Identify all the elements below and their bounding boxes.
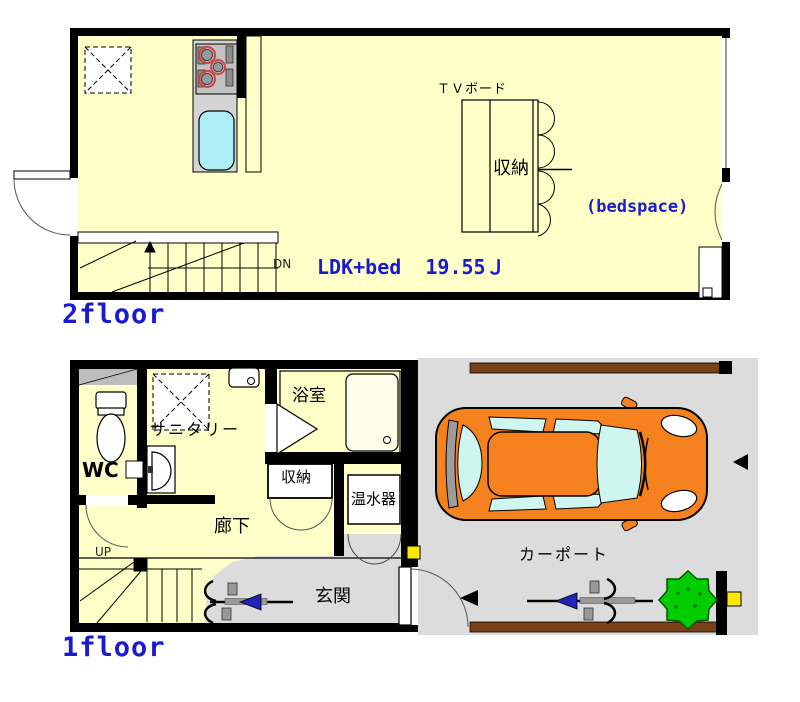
entrance-label: 玄関: [315, 588, 351, 606]
sanitary-label: サニタリー: [150, 422, 240, 438]
hallway-label: 廊下: [214, 518, 250, 536]
tv-board-label: ＴＶボード: [437, 83, 507, 96]
washbasin-icon: [147, 446, 175, 493]
car-icon: [436, 396, 707, 532]
carport: [418, 358, 758, 635]
meter-marker: [727, 592, 741, 606]
floor-plan-drawing: [0, 0, 800, 702]
fence-top: [470, 363, 720, 373]
drain: [384, 437, 391, 444]
meter-marker: [407, 546, 420, 559]
carport-label: カーポート: [519, 547, 609, 563]
toilet-icon: [96, 392, 126, 462]
stair-dn-label: DN: [273, 258, 291, 270]
water-heater-label: 温水器: [351, 492, 396, 507]
door-opening: [86, 495, 128, 505]
door-leaf: [14, 171, 70, 179]
floor1-label: 1floor: [62, 634, 166, 661]
bath-label: 浴室: [292, 388, 326, 405]
door-leaf: [399, 567, 411, 625]
paper-holder-icon: [126, 461, 143, 478]
sink-icon: [199, 111, 234, 170]
skylight-hatch-2f: [85, 47, 131, 93]
car-windshield: [597, 425, 642, 503]
floor1-plan: [70, 360, 478, 632]
stove-icon: [196, 44, 237, 94]
gate-post: [716, 571, 727, 635]
floor2-label: 2floor: [62, 301, 166, 328]
door-opening: [265, 404, 277, 454]
wc-label: WC: [82, 460, 119, 480]
room-area-label: LDK+bed 19.55Ｊ: [317, 257, 506, 277]
floor-plan-page: 2floor 1floor LDK+bed 19.55Ｊ (bedspace) …: [0, 0, 800, 702]
stair-up-label: UP: [95, 546, 111, 558]
closet-1f-label: 収納: [281, 470, 311, 485]
bedspace-label: (bedspace): [586, 199, 688, 216]
door-swing-arc: [14, 179, 70, 235]
car-roof: [488, 432, 600, 496]
closet-2f-label: 収納: [493, 160, 529, 178]
door-opening: [70, 178, 78, 236]
door-opening: [722, 182, 730, 242]
washing-machine-icon: [229, 368, 259, 387]
stair-newel: [134, 558, 147, 571]
bush-icon: [659, 571, 717, 629]
